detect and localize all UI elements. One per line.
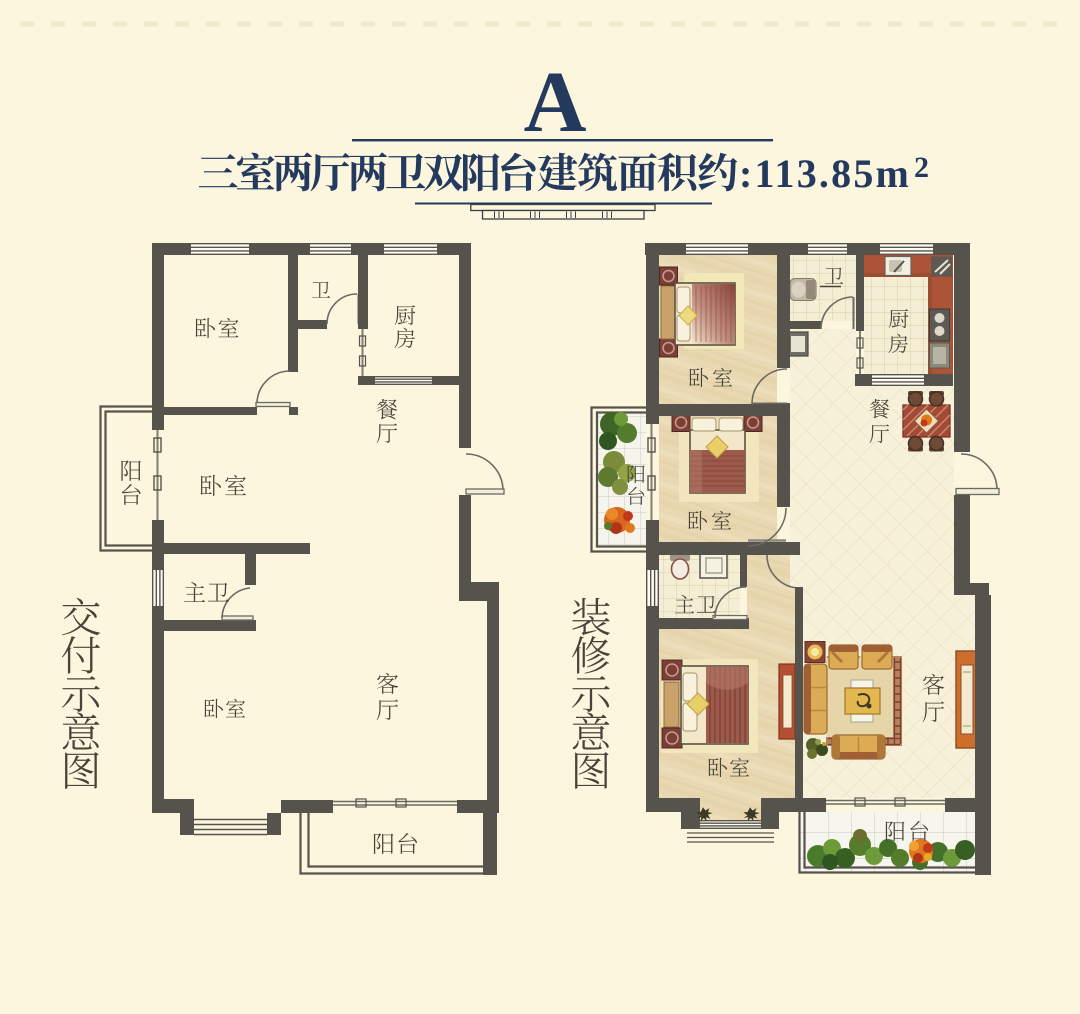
- svg-text::113.85m: :113.85m: [739, 151, 911, 196]
- svg-text:A: A: [524, 53, 587, 150]
- svg-text:2: 2: [914, 151, 929, 184]
